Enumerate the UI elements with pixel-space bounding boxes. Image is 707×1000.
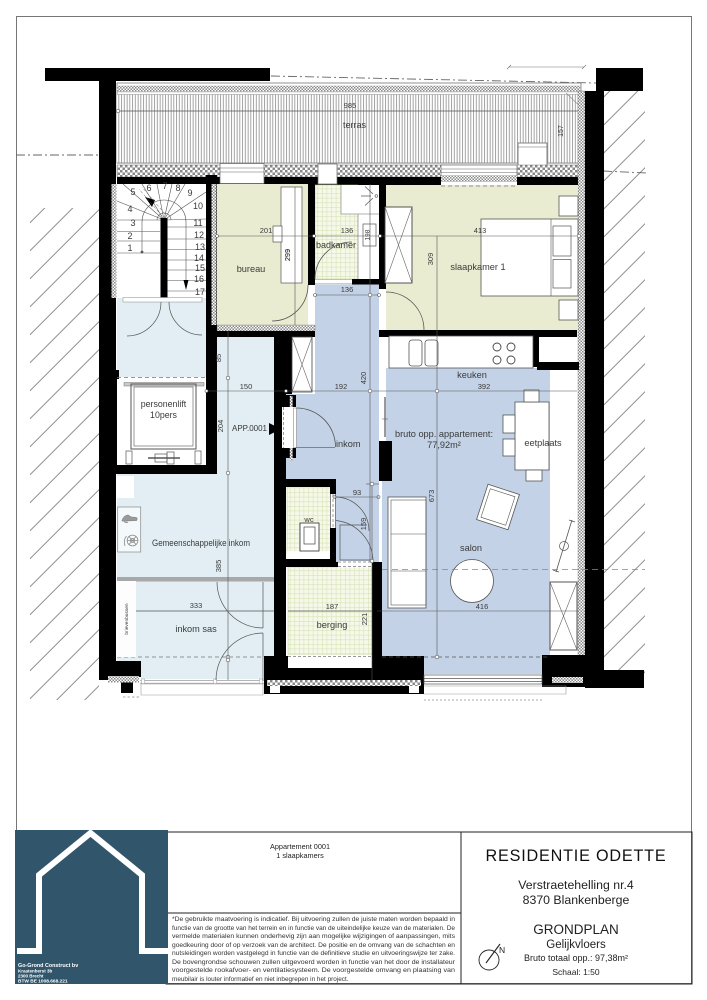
svg-text:meubilair is louter informatie: meubilair is louter informatief en niet … <box>172 976 349 983</box>
svg-text:4: 4 <box>127 204 132 214</box>
svg-text:12: 12 <box>194 230 204 240</box>
svg-text:bureau: bureau <box>237 264 266 274</box>
svg-text:10pers: 10pers <box>150 410 177 420</box>
svg-text:13: 13 <box>195 242 205 252</box>
svg-text:Gelijkvloers: Gelijkvloers <box>546 939 606 951</box>
svg-text:1: 1 <box>127 243 132 253</box>
svg-text:N: N <box>499 945 505 955</box>
svg-text:1 slaapkamers: 1 slaapkamers <box>276 851 324 860</box>
svg-text:voorgestelde rookafvoer- en ve: voorgestelde rookafvoer- en ventilatiesy… <box>172 967 455 974</box>
svg-text:157: 157 <box>558 125 565 137</box>
svg-text:136: 136 <box>341 285 354 294</box>
svg-text:85: 85 <box>214 354 223 362</box>
svg-text:Schaal: 1:50: Schaal: 1:50 <box>552 967 600 977</box>
svg-text:APP.0001: APP.0001 <box>232 424 268 433</box>
svg-text:slaapkamer 1: slaapkamer 1 <box>450 262 505 272</box>
svg-text:Gemeenschappelijke inkom: Gemeenschappelijke inkom <box>152 538 250 548</box>
svg-text:Appartement 0001: Appartement 0001 <box>270 842 330 851</box>
svg-text:Bruto totaal opp.: 97,38m²: Bruto totaal opp.: 97,38m² <box>524 953 628 963</box>
svg-text:333: 333 <box>190 601 203 610</box>
svg-text:BTW BE 1008.668.221: BTW BE 1008.668.221 <box>18 979 68 985</box>
svg-text:16: 16 <box>194 274 204 284</box>
svg-text:vermelde materialen kunnen ond: vermelde materialen kunnen onderhevig zi… <box>172 933 455 940</box>
svg-text:221: 221 <box>360 613 369 626</box>
svg-text:inkom sas: inkom sas <box>175 624 217 634</box>
svg-text:bruto opp. appartement:: bruto opp. appartement: <box>395 429 493 439</box>
svg-text:17: 17 <box>195 287 205 297</box>
svg-text:14: 14 <box>194 253 204 263</box>
svg-text:inkom: inkom <box>336 439 361 449</box>
svg-text:159: 159 <box>359 518 368 531</box>
svg-text:terras: terras <box>343 120 367 130</box>
svg-text:personenlift: personenlift <box>141 399 187 409</box>
svg-text:198: 198 <box>365 229 372 240</box>
svg-text:10: 10 <box>193 201 203 211</box>
svg-text:8: 8 <box>175 183 180 193</box>
svg-text:De bovengrondse schouwen zulle: De bovengrondse schouwen zullen uitgevoe… <box>172 959 456 966</box>
svg-text:77,92m²: 77,92m² <box>427 440 461 450</box>
svg-text:*De gebruikte maatvoering is i: *De gebruikte maatvoering is indicatief.… <box>172 916 455 923</box>
svg-text:673: 673 <box>427 490 436 503</box>
svg-text:keuken: keuken <box>457 370 487 380</box>
svg-text:15: 15 <box>195 263 205 273</box>
svg-text:309: 309 <box>426 253 435 266</box>
svg-text:93: 93 <box>353 488 361 497</box>
svg-text:3: 3 <box>130 218 135 228</box>
svg-text:8370 Blankenberge: 8370 Blankenberge <box>523 893 630 907</box>
svg-text:204: 204 <box>216 420 225 433</box>
svg-text:392: 392 <box>478 382 491 391</box>
svg-text:187: 187 <box>326 602 339 611</box>
svg-text:7: 7 <box>162 181 167 191</box>
svg-text:salon: salon <box>460 543 482 553</box>
svg-text:Verstraetehelling nr.4: Verstraetehelling nr.4 <box>518 878 634 892</box>
svg-text:functie van de grootte van het: functie van de grootte van het terrein e… <box>172 925 455 932</box>
svg-text:150: 150 <box>240 382 253 391</box>
svg-text:badkamer: badkamer <box>316 240 356 250</box>
svg-text:11: 11 <box>193 218 202 228</box>
svg-text:eetplaats: eetplaats <box>524 438 562 448</box>
svg-text:985: 985 <box>344 101 357 110</box>
svg-text:2: 2 <box>127 231 132 241</box>
svg-text:RESIDENTIE ODETTE: RESIDENTIE ODETTE <box>486 847 667 865</box>
svg-text:192: 192 <box>335 382 348 391</box>
svg-text:201: 201 <box>260 226 273 235</box>
svg-text:nutsleidingen worden vastgeleg: nutsleidingen worden vastgelegd in funct… <box>172 950 455 957</box>
svg-text:berging: berging <box>317 620 348 630</box>
svg-text:299: 299 <box>283 249 292 262</box>
svg-text:416: 416 <box>476 602 489 611</box>
svg-text:9: 9 <box>187 188 192 198</box>
svg-text:385: 385 <box>214 560 223 573</box>
svg-text:goedkeuring door of op verzoek: goedkeuring door of op verzoek van de ar… <box>172 942 455 949</box>
svg-text:GRONDPLAN: GRONDPLAN <box>533 922 619 937</box>
svg-text:413: 413 <box>474 226 487 235</box>
svg-text:136: 136 <box>341 226 354 235</box>
svg-text:2300 Brecht: 2300 Brecht <box>18 974 44 979</box>
svg-text:420: 420 <box>359 372 368 385</box>
svg-text:brievenbussen: brievenbussen <box>124 603 130 635</box>
svg-text:6: 6 <box>146 183 151 193</box>
svg-text:5: 5 <box>130 187 135 197</box>
